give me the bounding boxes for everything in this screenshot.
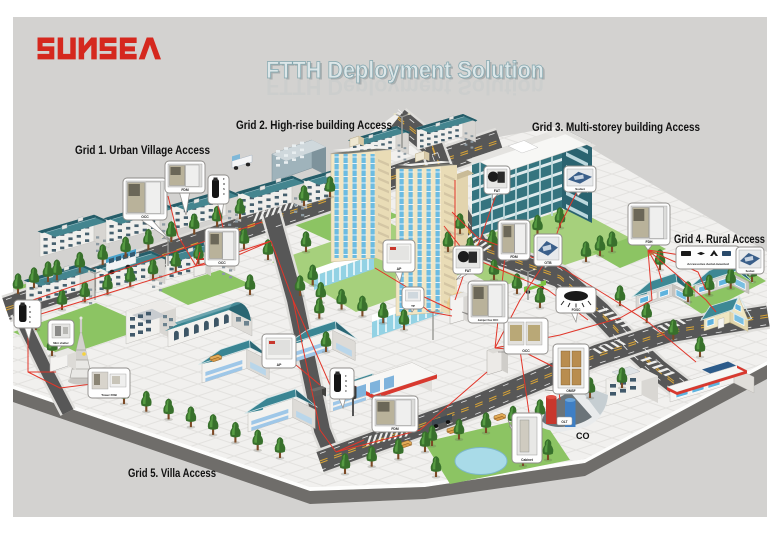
svg-text:OCC: OCC (141, 215, 149, 219)
svg-text:S: S (345, 384, 347, 388)
svg-text:OTB: OTB (544, 261, 552, 265)
svg-text:S: S (29, 315, 31, 319)
svg-text:Tower FDB: Tower FDB (101, 393, 117, 397)
svg-text:OCC: OCC (522, 349, 530, 353)
svg-text:FAT: FAT (494, 189, 501, 193)
svg-text:F: F (29, 305, 31, 309)
svg-text:CO: CO (576, 431, 590, 441)
svg-text:Grid 2. High-rise building Acc: Grid 2. High-rise building Access (236, 120, 392, 132)
svg-text:FTTH Deployment Solution: FTTH Deployment Solution (266, 75, 544, 100)
svg-text:Socket: Socket (746, 269, 755, 273)
svg-text:Mini shelter: Mini shelter (53, 341, 69, 345)
svg-text:F: F (223, 177, 225, 181)
svg-text:Grid 3. Multi-storey building: Grid 3. Multi-storey building Access (532, 122, 700, 134)
svg-text:C: C (345, 389, 347, 393)
svg-text:Cabinet: Cabinet (521, 458, 534, 462)
svg-text:FDM: FDM (510, 255, 518, 259)
svg-text:C: C (29, 320, 31, 324)
svg-text:FAT: FAT (465, 269, 472, 273)
svg-text:FDM: FDM (391, 427, 399, 431)
svg-text:FOSC: FOSC (572, 308, 582, 312)
svg-text:OCC: OCC (218, 261, 226, 265)
svg-text:FDM: FDM (181, 188, 189, 192)
svg-text:S: S (223, 187, 225, 191)
svg-text:Grid 1. Urban Village Access: Grid 1. Urban Village Access (75, 145, 210, 157)
svg-text:Accessories Aerial-mounted: Accessories Aerial-mounted (687, 262, 729, 266)
svg-text:Grid 5. Villa Access: Grid 5. Villa Access (128, 468, 216, 480)
svg-text:Grid 4. Rural Access: Grid 4. Rural Access (674, 234, 765, 246)
svg-text:Socket: Socket (575, 187, 585, 191)
svg-text:TP: TP (411, 304, 415, 308)
svg-text:AP: AP (397, 267, 402, 271)
svg-text:AP: AP (277, 363, 282, 367)
svg-text:Jumper free OCC: Jumper free OCC (478, 319, 499, 322)
svg-text:OLT: OLT (561, 420, 567, 424)
svg-text:F: F (345, 374, 347, 378)
svg-text:FDH: FDH (646, 240, 654, 244)
svg-text:OMSF: OMSF (566, 389, 575, 393)
svg-text:C: C (223, 192, 225, 196)
